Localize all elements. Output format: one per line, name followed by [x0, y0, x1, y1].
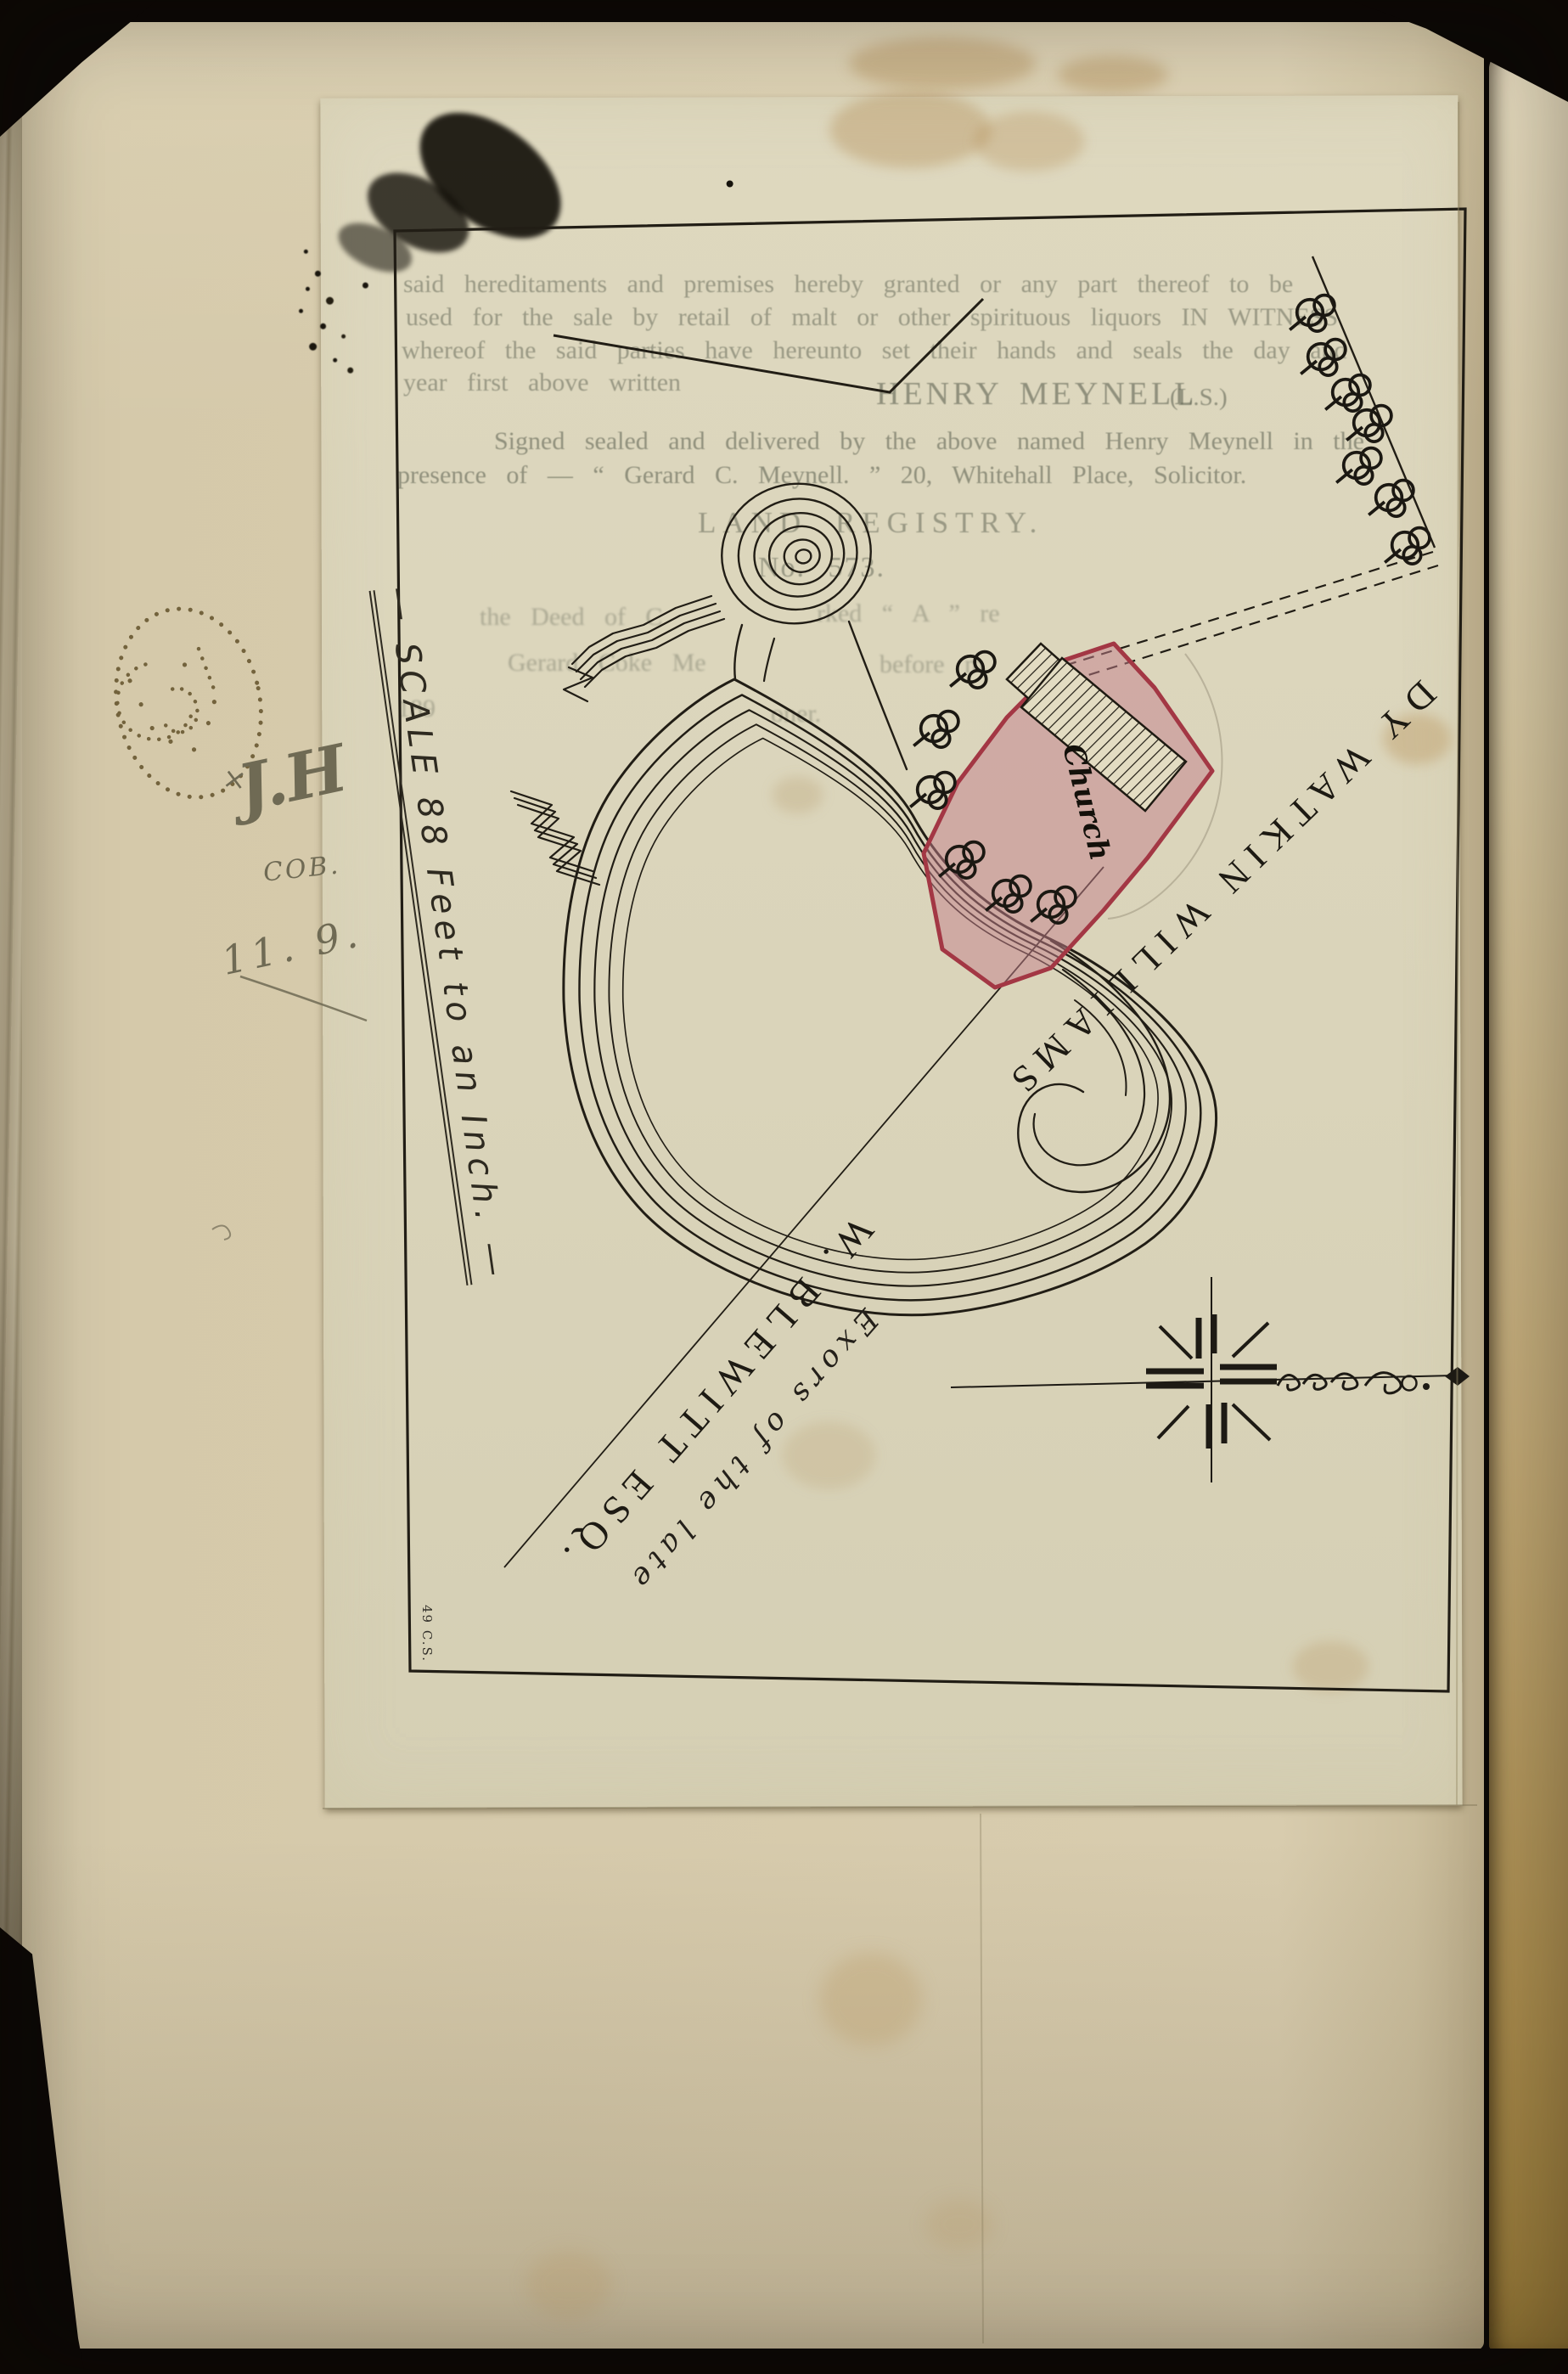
tree-icon	[1290, 295, 1335, 332]
survey-mark-icon	[951, 1277, 1470, 1482]
surveyor-corner-mark: 49 C.S.	[419, 1605, 435, 1662]
tree-icon	[1385, 528, 1430, 565]
ink-v-mark	[554, 299, 983, 392]
pencil-squiggle	[212, 1225, 230, 1240]
plan-border	[395, 209, 1465, 1691]
pencil-underline	[240, 976, 367, 1021]
tree-icon	[950, 652, 995, 689]
tree-icon	[1368, 481, 1413, 517]
tree-icon	[913, 712, 958, 748]
map-artwork-svg	[0, 0, 1568, 2374]
photographed-register-page: said hereditaments and premises hereby g…	[0, 0, 1568, 2374]
tree-icon	[1301, 340, 1346, 376]
tree-icon	[1336, 448, 1381, 485]
